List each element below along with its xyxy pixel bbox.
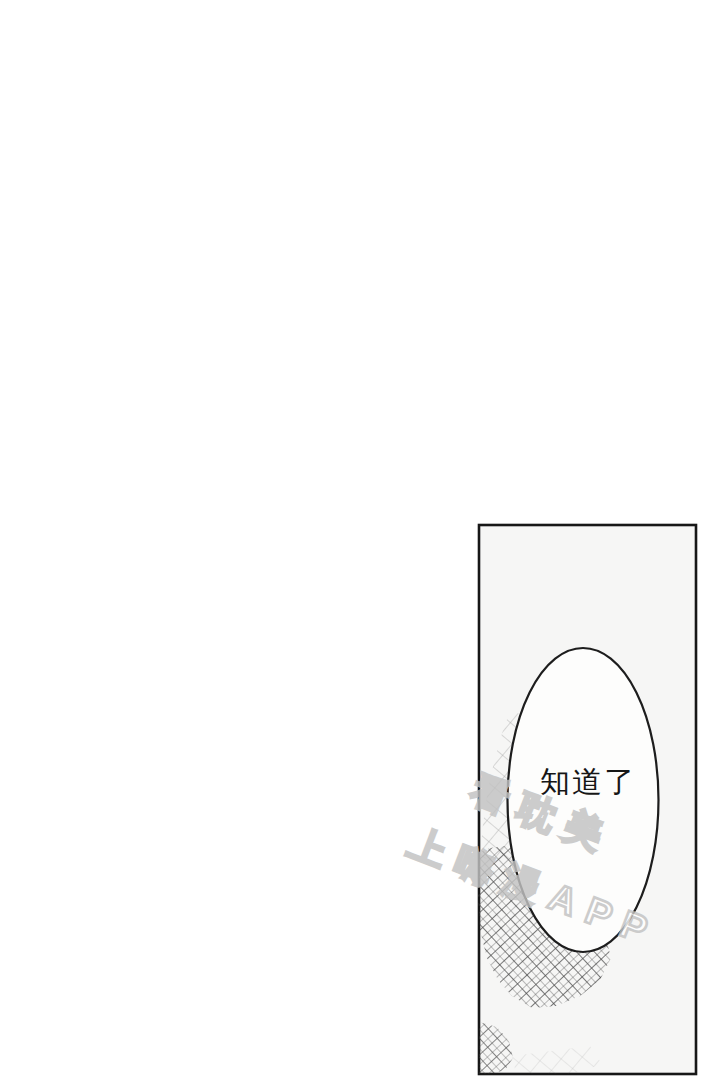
speech-bubble-text: 知道了 <box>508 765 668 799</box>
comic-page: 知道了 看耽美 上嗨漫APP <box>0 0 720 1080</box>
comic-panel-art <box>0 0 720 1080</box>
speech-bubble <box>508 648 659 952</box>
